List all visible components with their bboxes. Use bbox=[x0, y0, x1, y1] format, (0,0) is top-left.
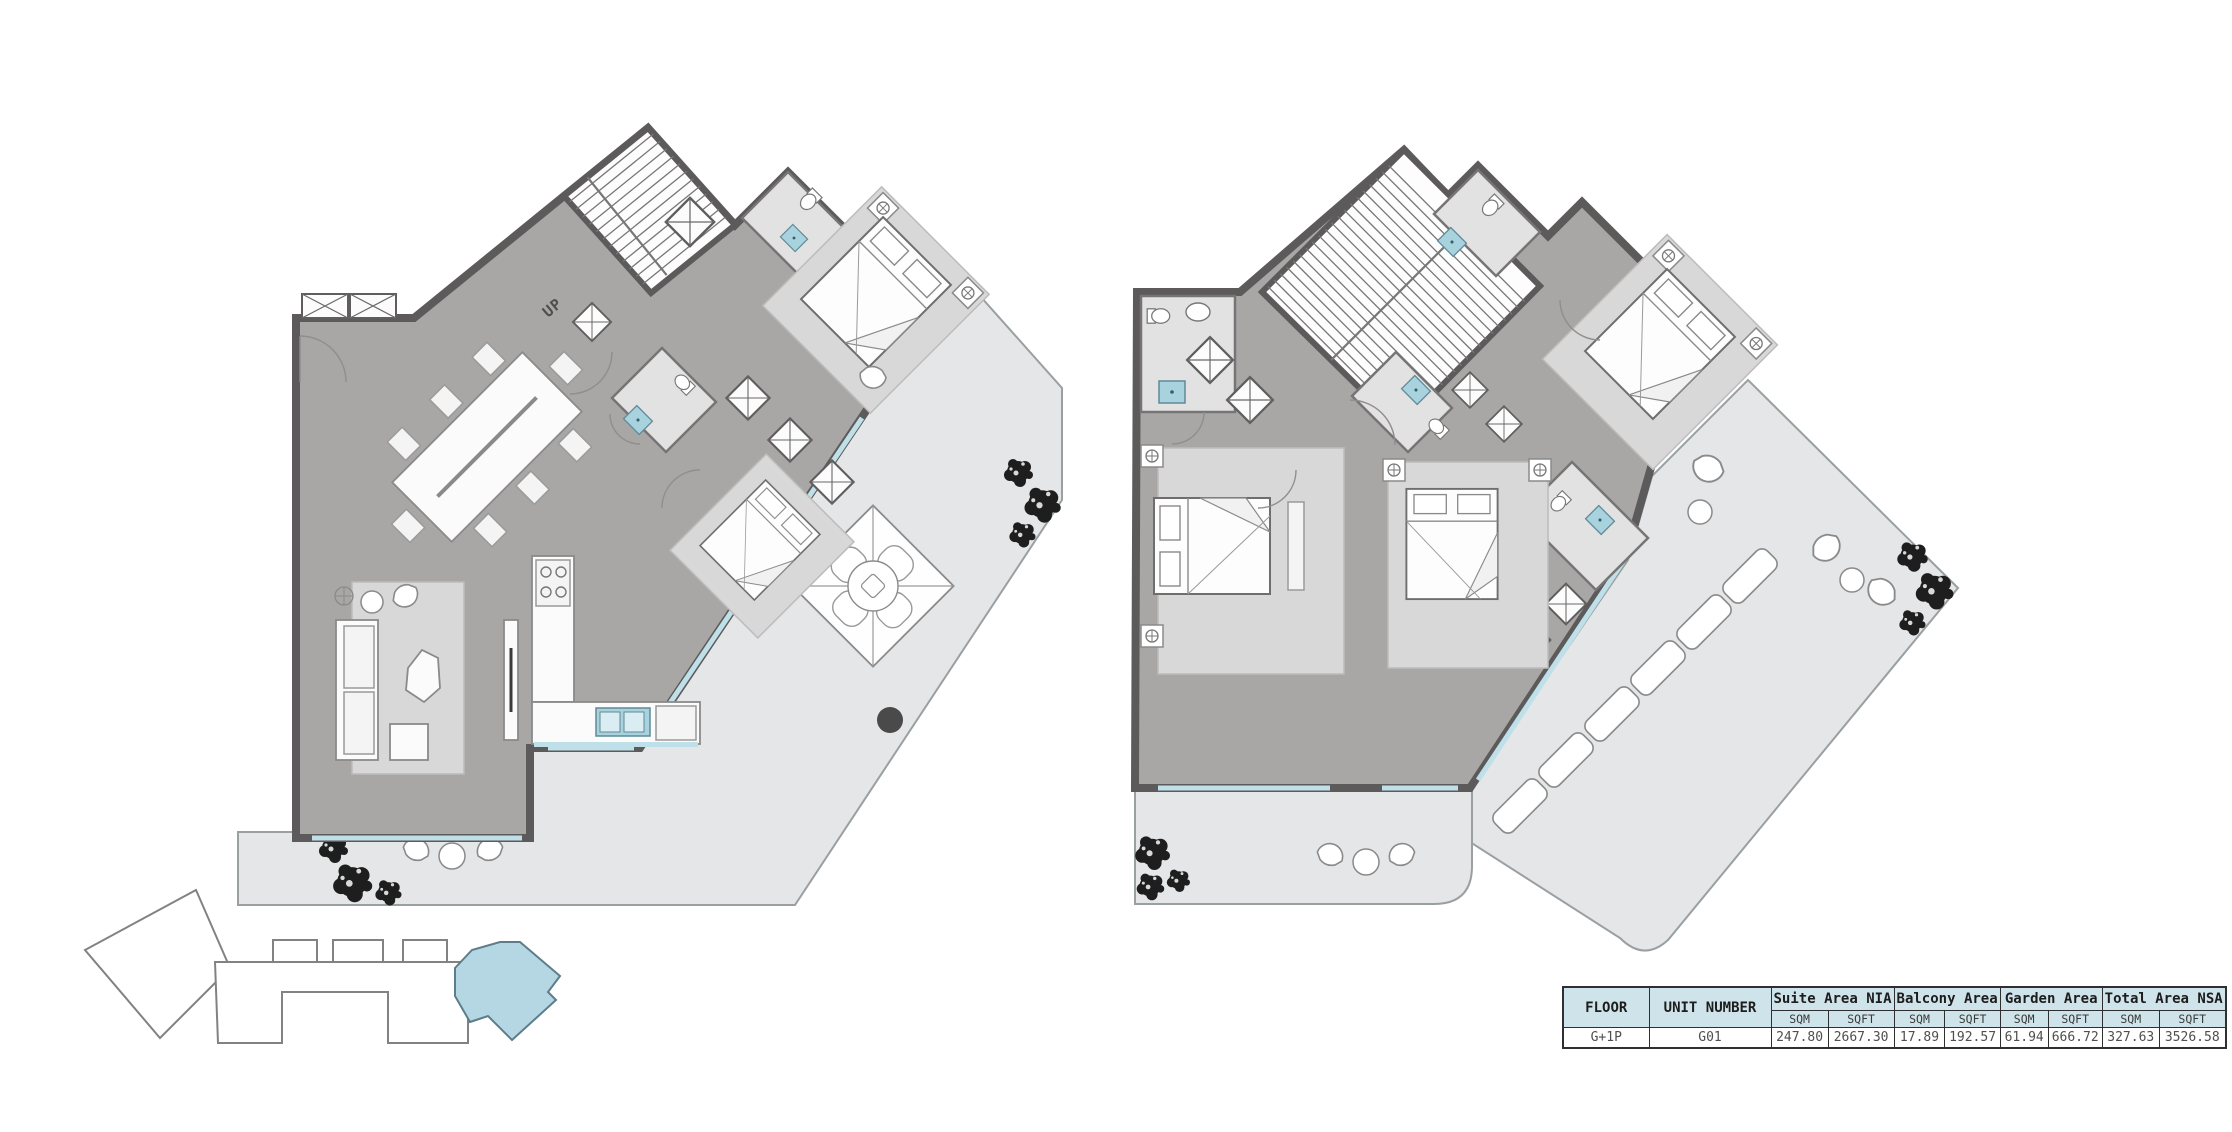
unit-header-sqft: SQFT bbox=[2048, 1011, 2102, 1028]
cell-suite-sqm: 247.80 bbox=[1771, 1028, 1828, 1049]
area-summary-table: FLOOR UNIT NUMBER Suite Area NIA Balcony… bbox=[1562, 986, 2227, 1049]
bedroom-middle bbox=[1383, 459, 1551, 668]
col-header-garden-area: Garden Area bbox=[2000, 987, 2102, 1011]
cell-balcony-sqm: 17.89 bbox=[1894, 1028, 1945, 1049]
cell-garden-sqm: 61.94 bbox=[2000, 1028, 2048, 1049]
unit-header-sqm: SQM bbox=[1771, 1011, 1828, 1028]
key-plan-block bbox=[403, 940, 447, 962]
cell-unit-number: G01 bbox=[1649, 1028, 1771, 1049]
right-balcony bbox=[1135, 790, 1472, 904]
pouf bbox=[390, 724, 428, 760]
cell-suite-sqft: 2667.30 bbox=[1828, 1028, 1894, 1049]
left-floor-plan: UP bbox=[238, 126, 1062, 906]
stove-icon bbox=[536, 560, 570, 606]
kitchen-sink-icon bbox=[596, 708, 650, 736]
unit-header-sqm: SQM bbox=[1894, 1011, 1945, 1028]
key-plan-block bbox=[273, 940, 317, 962]
col-header-floor: FLOOR bbox=[1563, 987, 1649, 1028]
key-plan bbox=[85, 890, 560, 1043]
key-plan-block bbox=[333, 940, 383, 962]
unit-header-sqm: SQM bbox=[2000, 1011, 2048, 1028]
key-plan-highlighted-unit bbox=[455, 942, 560, 1040]
entry-closet bbox=[302, 294, 396, 318]
key-plan-main-bar bbox=[215, 962, 468, 1043]
terrace-dot bbox=[877, 707, 903, 733]
cell-balcony-sqft: 192.57 bbox=[1945, 1028, 2000, 1049]
bathroom-sink-icon bbox=[1159, 381, 1185, 403]
unit-header-sqft: SQFT bbox=[1945, 1011, 2000, 1028]
col-header-unit-number: UNIT NUMBER bbox=[1649, 987, 1771, 1028]
col-header-suite-area: Suite Area NIA bbox=[1771, 987, 1894, 1011]
col-header-total-area: Total Area NSA bbox=[2102, 987, 2226, 1011]
bed-icon bbox=[1154, 498, 1270, 594]
sofa bbox=[336, 620, 378, 760]
unit-header-sqft: SQFT bbox=[2159, 1011, 2225, 1028]
floor-lamp-icon bbox=[335, 587, 353, 605]
right-floor-plan: DN bbox=[1135, 150, 1958, 951]
unit-header-sqm: SQM bbox=[2102, 1011, 2159, 1028]
side-table bbox=[361, 591, 383, 613]
tv-console bbox=[504, 620, 518, 740]
floor-plan-sheet: { "left_plan": { "name": "lower-level-fl… bbox=[0, 0, 2232, 1132]
table-row: G+1P G01 247.80 2667.30 17.89 192.57 61.… bbox=[1563, 1028, 2226, 1049]
unit-header-sqft: SQFT bbox=[1828, 1011, 1894, 1028]
cell-total-sqm: 327.63 bbox=[2102, 1028, 2159, 1049]
bed-icon bbox=[1406, 489, 1497, 599]
key-plan-left-wing bbox=[85, 890, 230, 1038]
cell-garden-sqft: 666.72 bbox=[2048, 1028, 2102, 1049]
cell-total-sqft: 3526.58 bbox=[2159, 1028, 2225, 1049]
bedroom-left bbox=[1141, 445, 1344, 674]
cell-floor: G+1P bbox=[1563, 1028, 1649, 1049]
col-header-balcony-area: Balcony Area bbox=[1894, 987, 2000, 1011]
floor-plans-drawing: UP bbox=[0, 0, 2232, 1132]
